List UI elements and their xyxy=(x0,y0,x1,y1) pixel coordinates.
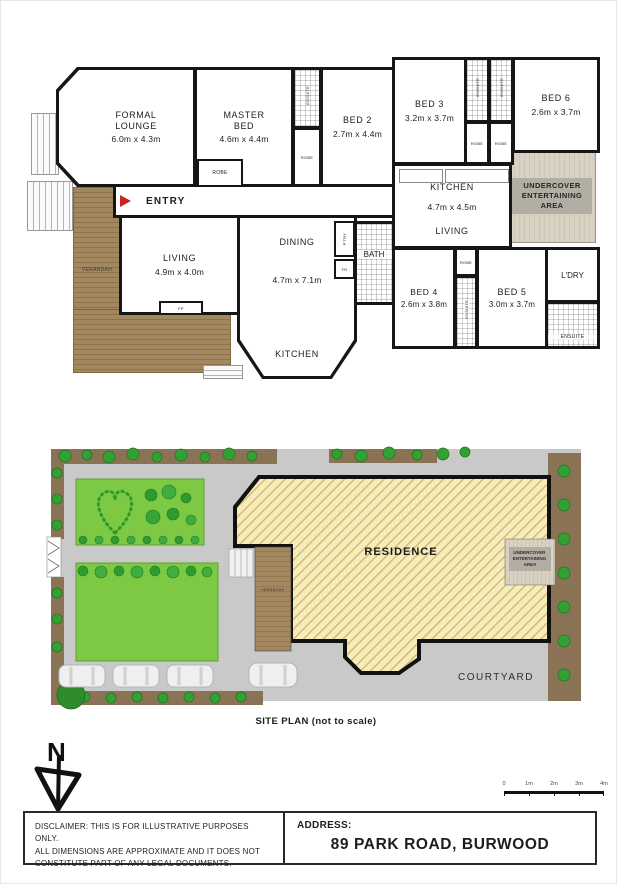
bath-label: BATH xyxy=(356,250,392,259)
room-bed-6: BED 6 2.6m x 3.7m xyxy=(512,57,600,153)
fridge: FR xyxy=(334,259,355,279)
formal-lounge-dims: 6.0m x 4.3m xyxy=(112,134,161,144)
bay-window xyxy=(31,113,59,175)
bed-3-dims: 3.2m x 3.7m xyxy=(405,113,454,123)
entry-hall: ENTRY xyxy=(113,184,395,218)
disclaimer-line: ALL DIMENSIONS ARE APPROXIMATE AND IT DO… xyxy=(35,846,273,858)
ensuite-a-label: ENSUITE xyxy=(475,78,480,97)
entry-label: ENTRY xyxy=(146,196,186,207)
kitchen-counter xyxy=(399,169,443,183)
ensuite-b-label: ENSUITE xyxy=(499,78,504,97)
robe-label: ROBE xyxy=(301,155,313,160)
disclaimer-line: DISCLAIMER: THIS IS FOR ILLUSTRATIVE PUR… xyxy=(35,821,273,846)
room-bed-4: BED 4 2.6m x 3.8m xyxy=(392,247,456,349)
master-ensuite: ENSUITE xyxy=(292,67,322,129)
porch-steps xyxy=(27,181,73,231)
scale-tick-label: 1m xyxy=(525,781,533,787)
bed-2-dims: 2.7m x 4.4m xyxy=(333,129,382,139)
room-formal-lounge: FORMAL LOUNGE 6.0m x 4.3m xyxy=(56,67,196,187)
bed-3-label: BED 3 xyxy=(415,99,444,110)
scale-bar: 0 1m 2m 3m 4m xyxy=(504,781,604,801)
living-upper-label: LIVING xyxy=(395,226,509,237)
living-main-label: LIVING xyxy=(163,253,196,264)
laundry-label: L'DRY xyxy=(561,271,584,280)
robe-label: ROBE xyxy=(495,141,507,146)
verandah-label: VERANDAH xyxy=(73,267,121,273)
undercover-entertaining-area: UNDERCOVER ENTERTAINING AREA xyxy=(508,149,596,243)
verandah-steps xyxy=(203,365,243,379)
bed-4-dims: 2.6m x 3.8m xyxy=(401,300,447,309)
site-steps xyxy=(229,549,253,577)
courtyard-label: COURTYARD xyxy=(458,672,534,683)
room-laundry: L'DRY xyxy=(545,247,600,303)
master-ensuite-label: ENSUITE xyxy=(305,86,310,105)
master-bed-dims: 4.6m x 4.4m xyxy=(220,134,269,144)
north-label: N xyxy=(47,737,66,767)
site-plan-caption: SITE PLAN (not to scale) xyxy=(51,716,581,727)
room-bed-3: BED 3 3.2m x 3.7m xyxy=(392,57,467,165)
fireplace: FP xyxy=(159,301,203,315)
bed-4-robe: ROBE xyxy=(454,247,478,277)
bed-4-ensuite-label: ENSUITE xyxy=(464,300,469,319)
scale-tick-label: 4m xyxy=(600,781,608,787)
north-arrow: N xyxy=(27,737,91,815)
bed-4-label: BED 4 xyxy=(410,287,438,298)
bed-6-label: BED 6 xyxy=(541,93,570,104)
fireplace-label: FP xyxy=(178,306,184,311)
bed-2-label: BED 2 xyxy=(343,115,372,126)
floorplan-page: VERANDAH ENTRY FORMAL LOUNGE 6.0m x 4.3m… xyxy=(0,0,617,884)
bed-4-ensuite: ENSUITE xyxy=(454,275,478,349)
entry-arrow-icon xyxy=(120,195,131,207)
cars xyxy=(59,663,297,687)
site-plan: VERANDAH UNDERCOVER ENTERTAINING AREA RE… xyxy=(45,441,585,713)
robe-b: ROBE xyxy=(488,121,514,165)
robe-label: ROBE xyxy=(212,170,227,176)
car-icon xyxy=(59,665,105,687)
verandah-deck-horizontal xyxy=(73,309,231,373)
bed-5-label: BED 5 xyxy=(497,287,526,298)
robe-label: ROBE xyxy=(460,260,472,265)
ensuite-a: ENSUITE xyxy=(464,57,490,123)
ensuite-b: ENSUITE xyxy=(488,57,514,123)
fridge-label: FR xyxy=(342,267,348,272)
room-bed-2: BED 2 2.7m x 4.4m xyxy=(320,67,395,187)
address-box: ADDRESS: 89 PARK ROAD, BURWOOD xyxy=(283,811,597,865)
robe-label: ROBE xyxy=(471,141,483,146)
bed-5-ensuite: ENSUITE xyxy=(545,301,600,349)
lawn-garden xyxy=(76,479,204,545)
living-main-dims: 4.9m x 4.0m xyxy=(155,267,204,277)
car-icon xyxy=(113,665,159,687)
address-label: ADDRESS: xyxy=(297,820,583,831)
room-kitchen-living-upper: KITCHEN 4.7m x 4.5m LIVING xyxy=(392,163,512,249)
kitchen-upper-dims: 4.7m x 4.5m xyxy=(395,202,509,212)
formal-lounge-label: FORMAL LOUNGE xyxy=(105,110,167,133)
pantry-label: P'TRY xyxy=(342,233,347,245)
master-bed-label: MASTER BED xyxy=(218,110,270,133)
gate-icon xyxy=(47,537,61,577)
scale-tick-label: 0 xyxy=(502,781,505,787)
disclaimer-box: DISCLAIMER: THIS IS FOR ILLUSTRATIVE PUR… xyxy=(23,811,285,865)
residence-label: RESIDENCE xyxy=(364,546,437,558)
north-arrow-stem xyxy=(58,755,59,809)
bed-5-ensuite-label: ENSUITE xyxy=(548,334,597,340)
lawn-main xyxy=(76,563,218,661)
room-living-main: LIVING 4.9m x 4.0m xyxy=(119,215,240,315)
scale-tick-label: 3m xyxy=(575,781,583,787)
master-robe: ROBE xyxy=(197,159,243,187)
disclaimer-line: CONSTITUTE PART OF ANY LEGAL DOCUMENTS. xyxy=(35,858,273,870)
room-bed-5: BED 5 3.0m x 3.7m xyxy=(476,247,548,349)
robe-a: ROBE xyxy=(464,121,490,165)
kitchen-main-label: KITCHEN xyxy=(237,349,357,360)
bed-6-dims: 2.6m x 3.7m xyxy=(532,107,581,117)
bed-5-dims: 3.0m x 3.7m xyxy=(489,300,535,309)
room-bath: BATH xyxy=(353,221,395,305)
undercover-area-label: UNDERCOVER ENTERTAINING AREA xyxy=(512,178,592,214)
kitchen-upper-label: KITCHEN xyxy=(395,182,509,193)
site-verandah-deck xyxy=(255,547,291,651)
kitchen-counter xyxy=(445,169,509,183)
pantry: P'TRY xyxy=(334,221,355,257)
site-verandah-label: VERANDAH xyxy=(261,588,284,592)
address-value: 89 PARK ROAD, BURWOOD xyxy=(297,836,583,854)
master-robe-side: ROBE xyxy=(292,127,322,187)
car-icon xyxy=(167,665,213,687)
car-icon xyxy=(249,663,297,687)
scale-tick-label: 2m xyxy=(550,781,558,787)
